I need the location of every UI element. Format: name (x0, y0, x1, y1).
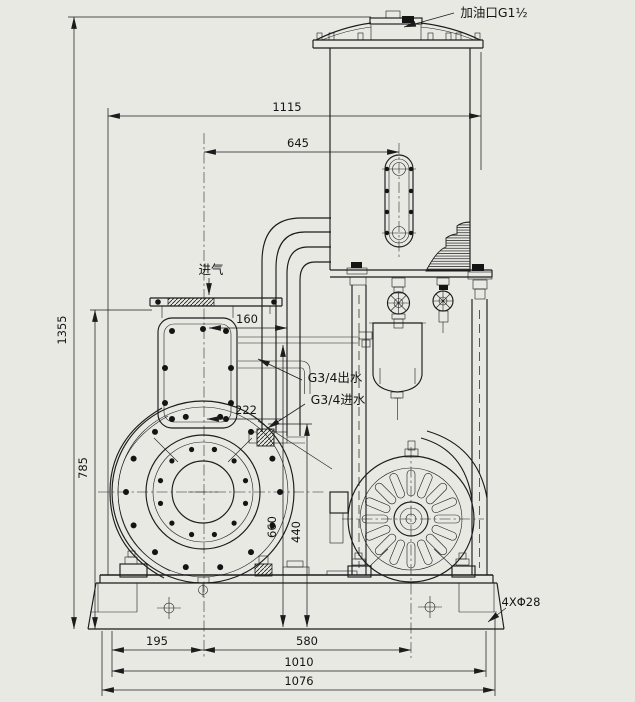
drawing-sheet: 1115 645 1355 785 160 222 660 440 195 58… (0, 0, 635, 702)
dim-pipe-center-height: 660 (265, 516, 279, 538)
label-air-inlet: 进气 (198, 262, 224, 277)
pump-casing (98, 133, 325, 658)
housing-bolts (162, 326, 234, 422)
vessel-drain (391, 392, 403, 398)
lid-bolts (317, 33, 480, 40)
dimension-lines: 1115 645 1355 785 160 222 660 440 195 58… (55, 17, 495, 696)
mounting-hole-left (157, 597, 181, 619)
lid-cap (370, 18, 422, 24)
tank-legs (347, 262, 492, 575)
label-base-holes: 4XΦ28 (502, 595, 541, 609)
separator-vessel (359, 323, 426, 420)
motor (330, 431, 487, 658)
pump-outline-drawing: 1115 645 1355 785 160 222 660 440 195 58… (0, 0, 635, 702)
tank-lid (313, 11, 483, 48)
label-water-inlet: G3/4进水 (311, 392, 366, 407)
tank-gusset (426, 222, 470, 271)
dim-overall-height: 1355 (55, 315, 69, 344)
base-fittings (255, 556, 357, 576)
oil-separator-tank (313, 11, 492, 277)
dim-pump-to-motor: 580 (296, 634, 318, 648)
label-water-outlet: G3/4出水 (308, 370, 363, 385)
water-inlet-fitting (249, 429, 305, 446)
valve-left (388, 278, 410, 328)
dim-hole-span: 1010 (284, 655, 313, 669)
dim-water-inlet-offset: 222 (235, 403, 257, 417)
right-leg (468, 264, 492, 575)
dim-foot-to-pump: 195 (146, 634, 168, 648)
dim-inlet-height: 785 (76, 457, 90, 479)
dim-overall-width: 1115 (272, 100, 301, 114)
drain-valves (388, 278, 454, 333)
dim-sight-glass-offset: 645 (287, 136, 309, 150)
left-leg (347, 262, 367, 575)
motor-feet (348, 549, 475, 577)
valve-right (433, 278, 453, 333)
dim-fitting-height: 440 (289, 521, 303, 543)
dim-base-width: 1076 (284, 674, 313, 688)
terminal-box (330, 492, 348, 513)
oil-sight-glass (382, 143, 416, 257)
label-oil-port: 加油口G1½ (460, 5, 527, 20)
mounting-hole-right (418, 596, 442, 618)
dim-inlet-offset: 160 (236, 312, 258, 326)
rear-pipe (421, 431, 487, 500)
base (88, 575, 504, 629)
oil-fill-port (386, 11, 400, 18)
